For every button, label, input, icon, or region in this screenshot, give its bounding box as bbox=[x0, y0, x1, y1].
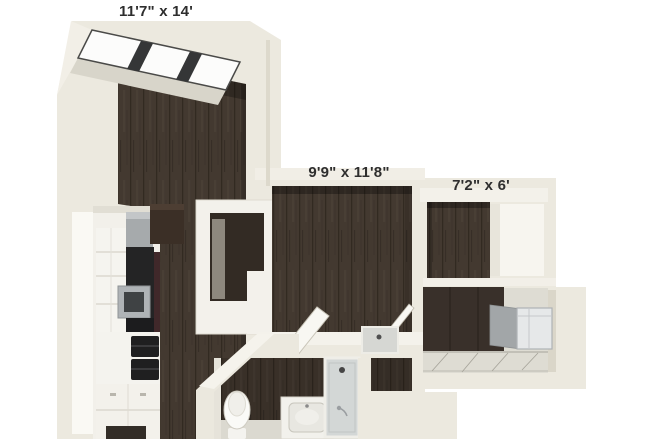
floor-plan-image: 11'7" x 14' 9'9" x 11'8" 7'2" x 6' bbox=[0, 0, 649, 439]
hall-closet bbox=[196, 200, 280, 334]
bathtub bbox=[325, 358, 359, 437]
kitchen-steel-cabinet bbox=[126, 212, 153, 247]
cooktop bbox=[96, 332, 160, 384]
bedroom-dimensions-label: 9'9" x 11'8" bbox=[308, 164, 389, 181]
closet-door-panel bbox=[490, 305, 521, 349]
hall-doorway bbox=[371, 358, 412, 391]
nook-sink bbox=[362, 327, 398, 353]
lower-cabinets bbox=[96, 384, 160, 439]
laundry-closet bbox=[423, 287, 552, 373]
floor-plan-svg: 11'7" x 14' 9'9" x 11'8" 7'2" x 6' bbox=[0, 0, 649, 439]
den-dimensions-label: 7'2" x 6' bbox=[452, 177, 510, 194]
washer-dryer bbox=[517, 308, 552, 349]
kitchen-wood-cabinet bbox=[150, 204, 184, 244]
living-room-dimensions-label: 11'7" x 14' bbox=[119, 3, 193, 20]
den-room bbox=[423, 202, 556, 286]
